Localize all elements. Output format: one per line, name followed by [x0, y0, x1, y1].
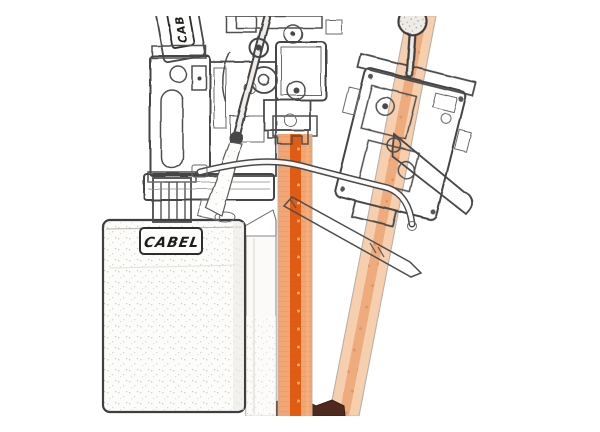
sketch-canvas: CABEL CABEL [40, 16, 600, 416]
product-illustration: CABEL CABEL [40, 16, 600, 416]
tank-logo-text: CABEL [143, 235, 201, 251]
tank-logo-plate: CABEL [140, 228, 202, 254]
